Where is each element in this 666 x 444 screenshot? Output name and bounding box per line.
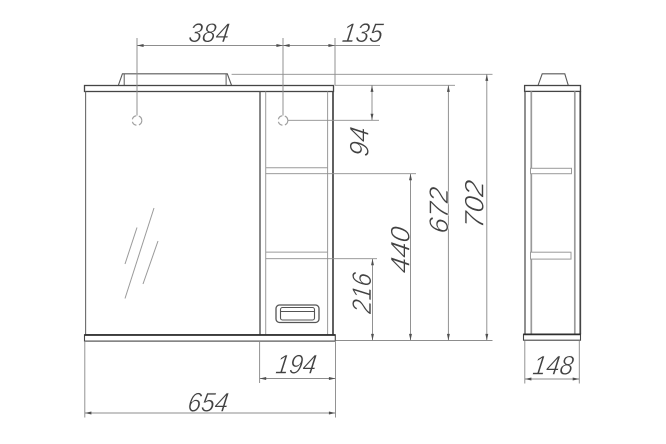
svg-text:702: 702 (459, 178, 489, 230)
svg-text:135: 135 (340, 19, 385, 48)
svg-text:384: 384 (187, 19, 232, 48)
svg-text:94: 94 (344, 125, 374, 158)
svg-text:440: 440 (385, 225, 416, 275)
svg-text:194: 194 (274, 350, 319, 379)
svg-text:672: 672 (423, 185, 454, 235)
svg-text:148: 148 (531, 351, 576, 380)
svg-text:654: 654 (186, 388, 231, 417)
svg-text:216: 216 (348, 270, 377, 316)
